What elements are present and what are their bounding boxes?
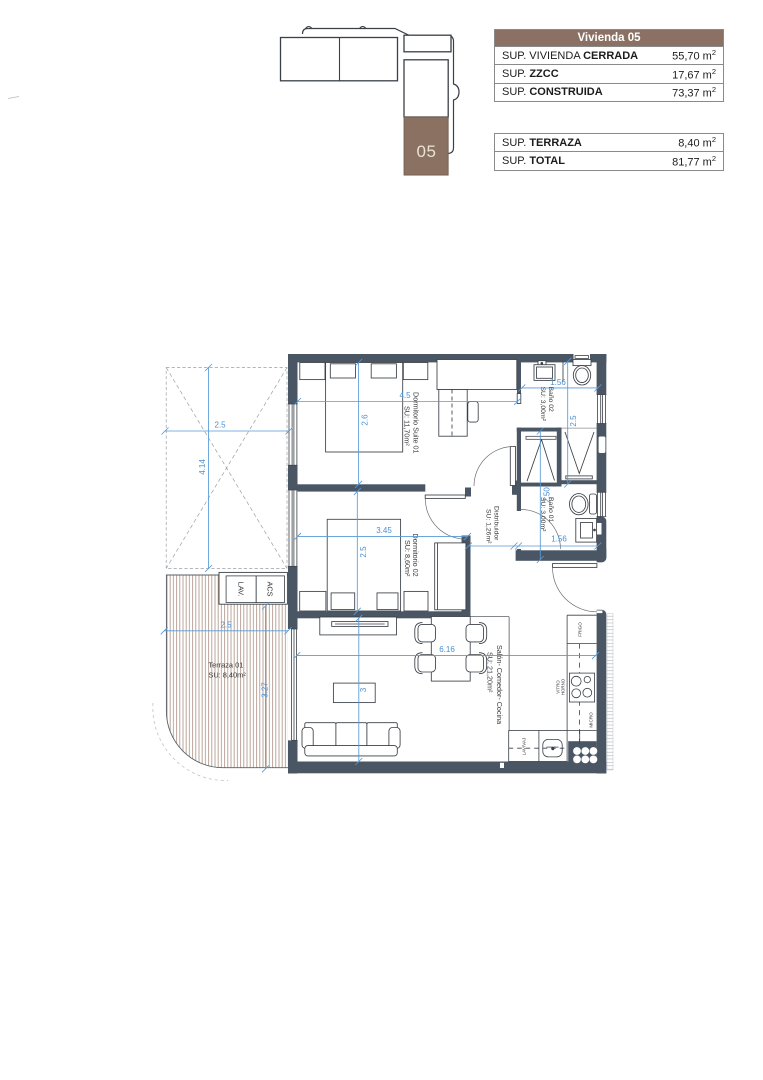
svg-text:3.27: 3.27: [261, 682, 270, 698]
svg-text:LAV.: LAV.: [237, 582, 246, 597]
svg-text:SU: 3,00m²: SU: 3,00m²: [539, 387, 546, 422]
svg-text:1.56: 1.56: [550, 378, 566, 387]
svg-text:MICRO: MICRO: [589, 712, 594, 728]
svg-text:2.5: 2.5: [359, 546, 368, 558]
svg-text:1.56: 1.56: [551, 535, 567, 544]
svg-text:SU: 8,40m²: SU: 8,40m²: [208, 671, 246, 680]
svg-text:LAV/VAJ: LAV/VAJ: [522, 738, 527, 756]
svg-text:2.50: 2.50: [543, 487, 552, 503]
svg-text:Distribuidor: Distribuidor: [493, 506, 500, 541]
svg-text:4.14: 4.14: [198, 459, 207, 475]
svg-text:Terraza 01: Terraza 01: [208, 661, 243, 670]
svg-text:2.6: 2.6: [361, 414, 370, 426]
svg-text:SU: 21,20m²: SU: 21,20m²: [486, 652, 495, 693]
svg-text:SU: 1,26m²: SU: 1,26m²: [485, 509, 492, 544]
svg-text:05: 05: [417, 142, 437, 161]
svg-text:Salón- Comedor- Cocina: Salón- Comedor- Cocina: [495, 645, 504, 724]
svg-text:2.5: 2.5: [569, 415, 578, 427]
svg-text:SU: 8,60m²: SU: 8,60m²: [403, 540, 412, 577]
svg-text:3.45: 3.45: [376, 526, 392, 535]
svg-text:FRIGO: FRIGO: [578, 622, 583, 637]
svg-text:Baño 02: Baño 02: [547, 387, 554, 413]
svg-text:HORNO: HORNO: [561, 678, 566, 695]
svg-text:2.5: 2.5: [220, 620, 232, 629]
svg-text:2.5: 2.5: [214, 421, 226, 430]
svg-text:SU: 11,70m²: SU: 11,70m²: [403, 406, 412, 446]
svg-text:ACS: ACS: [266, 581, 275, 596]
svg-text:3: 3: [359, 687, 368, 692]
svg-text:6.16: 6.16: [439, 645, 455, 654]
svg-text:4.5: 4.5: [399, 391, 411, 400]
